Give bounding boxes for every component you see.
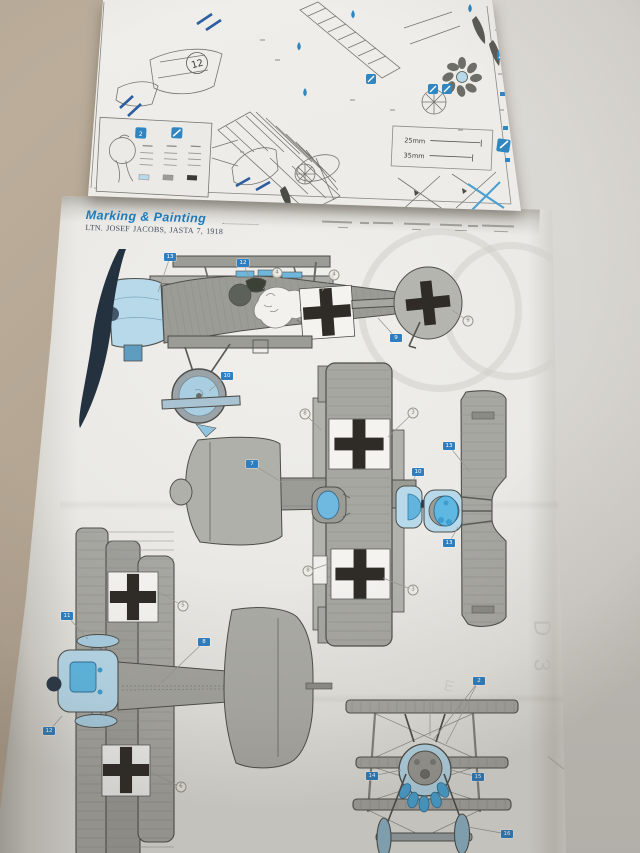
photo-scene: D 3 E Marking & Painting LTN. JOSEF JACO… [0,0,640,853]
svg-text:2: 2 [139,131,143,138]
assembly-page: 12 [0,0,640,853]
svg-text:12: 12 [190,58,205,72]
detail-callout-box: 2 [96,117,212,197]
paint-drop-icon [297,4,472,96]
rigging-diagram [398,172,504,212]
svg-text:35mm: 35mm [403,151,424,160]
propeller-sketch [472,16,500,66]
paint-brush-icon [366,50,507,94]
svg-text:25mm: 25mm [404,136,425,145]
rigging-length-box: 25mm 35mm [391,126,493,170]
assembly-diagram: 12 [0,0,640,214]
assembly-page-wrap: 12 [0,0,640,853]
